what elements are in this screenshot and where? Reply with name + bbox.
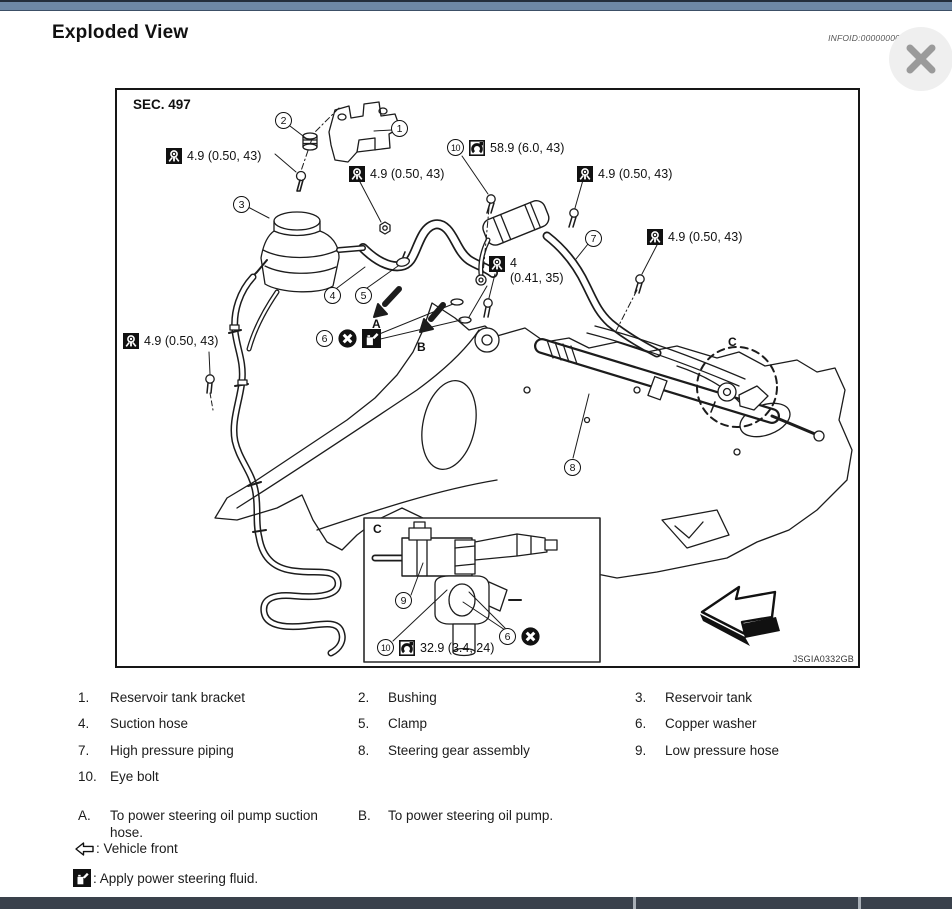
torque-icon (123, 333, 139, 349)
legend-label: High pressure piping (110, 743, 358, 760)
callout-9: 9 (395, 592, 412, 609)
eyebolt-torque-label: 10 32.9 (3.4, 24) (377, 639, 494, 656)
close-icon (904, 42, 938, 76)
legend-label: Bushing (388, 690, 635, 707)
callout-1: 1 (391, 120, 408, 137)
bottom-bar-divider (858, 897, 861, 909)
callout-2: 2 (275, 112, 292, 129)
torque-icon (489, 256, 505, 272)
ref-letter-a: A (372, 317, 381, 331)
legend-num: 10. (78, 769, 110, 786)
inset-callout-6-group: 6 (499, 627, 540, 646)
legend-num: 7. (78, 743, 110, 760)
torque-label: 4.9 (0.50, 43) (123, 333, 218, 349)
ref-letter-b: B (417, 340, 426, 354)
torque-icon (349, 166, 365, 182)
apply-fluid-icon (362, 329, 381, 348)
page-title: Exploded View (52, 22, 188, 44)
bottom-bar-divider (633, 897, 636, 909)
torque-label: 4.9 (0.50, 43) (577, 166, 672, 182)
legend-label: Steering gear assembly (388, 743, 635, 760)
inset-letter-c: C (373, 522, 382, 536)
legend-ref-label: To power steering oil pump suction hose. (110, 808, 358, 842)
close-button[interactable] (889, 27, 952, 91)
apply-fluid-note: : Apply power steering fluid. (73, 869, 258, 887)
torque-icon (577, 166, 593, 182)
callout-7: 7 (585, 230, 602, 247)
torque-label: 4 (0.41, 35) (489, 256, 564, 286)
legend-num: 4. (78, 716, 110, 733)
legend-ref-letter: B. (358, 808, 388, 842)
bottom-window-bar (0, 897, 952, 909)
callout-3: 3 (233, 196, 250, 213)
vehicle-front-arrow-icon (75, 842, 94, 856)
legend-num: 8. (358, 743, 388, 760)
legend-num: 1. (78, 690, 110, 707)
exploded-view-diagram: SEC. 497 JSGIA0332GB 2 1 3 7 4 5 8 9 6 6… (115, 88, 860, 668)
torque-label: 4.9 (0.50, 43) (647, 229, 742, 245)
callout-4: 4 (324, 287, 341, 304)
legend-num: 5. (358, 716, 388, 733)
line-art (117, 90, 858, 666)
legend-num: 3. (635, 690, 665, 707)
torque-icon (166, 148, 182, 164)
legend-label: Low pressure hose (665, 743, 890, 760)
legend-num: 6. (635, 716, 665, 733)
vehicle-front-note: : Vehicle front (75, 841, 178, 856)
callout-6-group: 6 (316, 329, 381, 348)
torque-icon (647, 229, 663, 245)
detail-letter-c: C (728, 335, 737, 349)
section-label: SEC. 497 (133, 97, 191, 112)
callout-5: 5 (355, 287, 372, 304)
apply-fluid-icon (73, 869, 91, 887)
do-not-reuse-icon (521, 627, 540, 646)
top-window-bar (0, 0, 952, 11)
torque-label: 4.9 (0.50, 43) (166, 148, 261, 164)
legend-ref-letter: A. (78, 808, 110, 842)
legend-ref-label: To power steering oil pump. (388, 808, 890, 842)
legend-label: Suction hose (110, 716, 358, 733)
torque-label: 4.9 (0.50, 43) (349, 166, 444, 182)
callout-6-inset: 6 (499, 628, 516, 645)
legend-num: 9. (635, 743, 665, 760)
legend-label: Reservoir tank (665, 690, 890, 707)
callout-8: 8 (564, 459, 581, 476)
do-not-reuse-icon (338, 329, 357, 348)
legend-label: Clamp (388, 716, 635, 733)
eyebolt-icon (469, 140, 485, 156)
eyebolt-icon (399, 640, 415, 656)
parts-legend: 1. Reservoir tank bracket 2. Bushing 3. … (78, 690, 890, 842)
legend-label: Copper washer (665, 716, 890, 733)
callout-6: 6 (316, 330, 333, 347)
legend-num: 2. (358, 690, 388, 707)
figure-id: JSGIA0332GB (793, 654, 854, 664)
legend-label: Eye bolt (110, 769, 358, 786)
eyebolt-torque-label: 10 58.9 (6.0, 43) (447, 139, 564, 156)
legend-label: Reservoir tank bracket (110, 690, 358, 707)
